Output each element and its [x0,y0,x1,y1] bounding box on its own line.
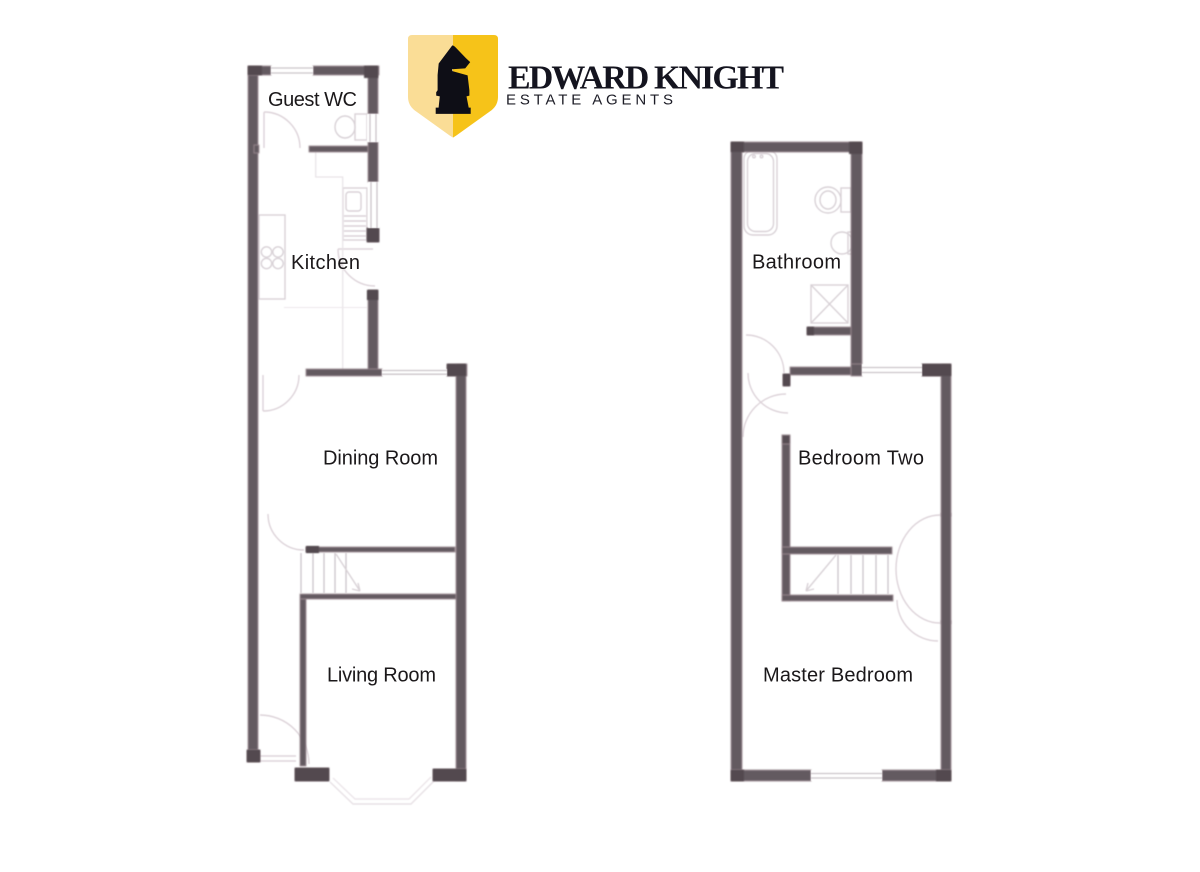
svg-text:Bedroom Two: Bedroom Two [798,448,924,470]
svg-text:Living Room: Living Room [327,665,436,687]
svg-text:Guest WC: Guest WC [268,89,357,111]
svg-text:Bathroom: Bathroom [752,252,841,274]
svg-text:Kitchen: Kitchen [291,252,360,274]
svg-text:Dining Room: Dining Room [323,448,438,470]
svg-text:Master Bedroom: Master Bedroom [763,665,913,687]
